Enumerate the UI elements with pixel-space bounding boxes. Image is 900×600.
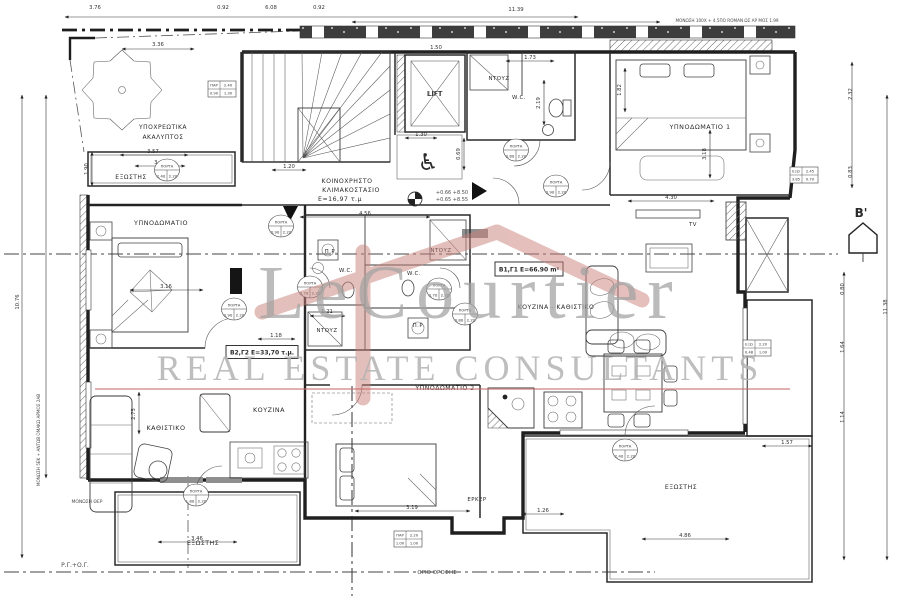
door-tag-word: ΠΟΡΤΑ: [619, 445, 632, 449]
stair-core-cross: [298, 108, 340, 162]
stair-fan: [302, 52, 390, 158]
kitchen-corner-hatch: [488, 408, 508, 428]
window-tag-cell: 2.45: [806, 170, 815, 174]
chair-3: [608, 414, 624, 427]
balcony-bottom-left-inner: [118, 495, 297, 562]
duct-shaft-cross: [746, 218, 788, 292]
door-tag-width: 0.80: [506, 154, 515, 159]
nightstand-1b: [750, 134, 770, 152]
room-label: ΕΡΚΕΡ: [467, 497, 487, 503]
door-tag-width: 1.80: [186, 499, 195, 504]
boundary-corner-bracket: [70, 38, 95, 60]
door-tag-word: ΠΟΡΤΑ: [228, 304, 241, 308]
dimension-label: 10.76: [15, 294, 21, 310]
blanket-cross: [130, 270, 172, 312]
door-tag-word: ΠΟΡΤΑ: [190, 490, 203, 494]
sofa-b2-cushions: [90, 425, 132, 483]
window-tag-cell: 2.20: [759, 343, 768, 347]
room-label: ΚΟΥΖΙΝΑ: [253, 406, 285, 414]
dimension-label: 3.57: [147, 149, 159, 155]
nightstand-1a: [750, 56, 770, 74]
window-tag-cell: 3.85: [792, 178, 801, 182]
street-wall-band: [300, 26, 795, 38]
dimension-label: 1.14: [840, 410, 846, 422]
room-label: ΕΞΩΣΤΗΣ: [665, 484, 697, 491]
dimension-label: 2.32: [848, 88, 854, 100]
balcony-bottom-right: [523, 436, 812, 582]
room-label: ΚΛΙΜΑΚΟΣΤΑΣΙΟ: [322, 187, 380, 194]
shower-diag: [470, 55, 508, 90]
door-tag-width: 0.90: [224, 313, 233, 318]
stair-steps: [252, 52, 285, 162]
tv-stand: [636, 210, 700, 218]
bed-2-pillow: [118, 243, 182, 257]
counter-b2: [230, 442, 308, 478]
dimension-label: 0.69: [456, 148, 462, 160]
sink-b2: [238, 448, 262, 468]
room-label: LIFT: [427, 90, 443, 98]
window-tag-cell: 1.00: [410, 542, 419, 546]
rug-1: [640, 156, 724, 180]
dimension-label: 1.50: [430, 45, 442, 51]
note-label: ΜΟΝΩΣΗ ΘΕΡ: [72, 499, 103, 505]
sink-b2-basin: [245, 453, 255, 463]
burner-b2-4: [292, 463, 300, 471]
burner-b2-1: [278, 449, 286, 457]
dimension-label: 1.82: [617, 84, 623, 96]
window-tag-cell: ΠΑΡ: [396, 534, 404, 538]
room-label: ΥΠΟΧΡΕΩΤΙΚΑ: [138, 124, 187, 131]
tree-icon: [82, 50, 162, 130]
note-label: +0.65 +8.55: [436, 197, 468, 203]
bed-2-fold: [112, 300, 148, 332]
door-tag-height: 2.20: [198, 499, 207, 504]
door-arc-1: [205, 318, 235, 348]
watermark-subtitle: REAL ESTATE CONSULTANTS: [157, 348, 764, 388]
room-label: ΥΠΝΟΔΩΜΑΤΙΟ 1: [668, 123, 730, 131]
room-label: ΑΚΑΛΥΠΤΟΣ: [142, 134, 183, 141]
floor-plan-canvas: LIFT ♿: [0, 0, 900, 600]
window-tag-cell: 0.90: [210, 92, 219, 96]
dimension-label: 2.75: [131, 408, 137, 420]
door-tag-height: 2.20: [518, 154, 527, 159]
dimension-label: 1.20: [283, 164, 295, 170]
column-hatched: [726, 202, 746, 240]
bed-2: [112, 238, 188, 332]
window-tag-cell: 2.40: [224, 84, 233, 88]
dimension-label: 3.19: [406, 505, 418, 511]
door-tag-height: 2.20: [283, 230, 292, 235]
dimension-label: 1.30: [415, 132, 427, 138]
staircase: [242, 52, 390, 162]
stair-outline: [242, 52, 390, 162]
dimension-label: 1.90: [84, 162, 90, 174]
dimension-label: 11.38: [883, 299, 889, 315]
door-tag-width: 0.90: [271, 230, 280, 235]
dimension-label: 1.64: [840, 340, 846, 352]
door-tag-height: 2.20: [627, 454, 636, 459]
door-tag-word: ΠΟΡΤΑ: [550, 181, 563, 185]
burner-b2-2: [292, 449, 300, 457]
dimension-label: 1.57: [781, 440, 793, 446]
insulated-wall-top: [610, 40, 772, 52]
toilet-icon-top: [549, 99, 563, 117]
section-marker-label: B': [855, 206, 868, 220]
door-tag-word: ΠΟΡΤΑ: [161, 165, 174, 169]
bed-1-pillow-b: [684, 64, 714, 77]
burner-b1-2: [566, 396, 576, 406]
window-tag-cell: ΕΞΩ: [792, 170, 800, 174]
kitchen-sink-b1: [512, 398, 524, 410]
door-tag-word: ΠΟΡΤΑ: [510, 145, 523, 149]
note-label: +0.66 +8.50: [436, 190, 468, 196]
door-tag-height: 2.20: [558, 190, 567, 195]
dimension-label: 3.76: [89, 5, 101, 11]
room-label: ΚΟΙΝΟΧΡΗΣΤΟ: [322, 178, 373, 185]
dimension-label: 4.30: [665, 195, 677, 201]
dimension-label: 1.26: [537, 508, 549, 514]
lift-shaft-wall: [397, 55, 405, 132]
lamp-2b: [96, 334, 106, 344]
bed-3-fold: [408, 474, 436, 506]
watermark: LeCourtier REAL ESTATE CONSULTANTS: [95, 232, 790, 398]
room-label: Ε=16,97 τ.μ: [318, 196, 362, 203]
nightstand-2b: [90, 330, 112, 348]
dimension-label: 6.08: [265, 5, 277, 11]
burner-b1-1: [548, 396, 558, 406]
dimension-label: 0.92: [217, 5, 229, 11]
nightstand-2a: [90, 222, 112, 240]
bed-1-fold: [616, 118, 648, 150]
column: [230, 268, 242, 294]
burner-b1-3: [548, 412, 558, 422]
dimension-label: 0.80: [840, 282, 846, 294]
window-tag-cell: 0.70: [806, 178, 815, 182]
door-tag-width: 2.40: [157, 174, 166, 179]
door-arc-7: [582, 162, 610, 190]
bed-1: [616, 60, 746, 150]
dimension-label: 4.56: [359, 211, 371, 217]
bedroom2-walls: [305, 385, 480, 518]
entry-arrow-b1: [472, 182, 487, 200]
room-label: ΚΑΘΙΣΤΙΚΟ: [146, 424, 185, 432]
room-label: ΥΠΝΟΔΩΜΑΤΙΟ: [133, 219, 188, 227]
sliding-door-south: [560, 430, 688, 435]
dimension-label: 0.92: [313, 5, 325, 11]
burner-b2-3: [278, 463, 286, 471]
room-label: ΕΞΩΣΤΗΣ: [115, 174, 146, 181]
stove-b2: [274, 446, 304, 474]
room-label: W.C.: [512, 95, 526, 101]
window-tag-cell: ΠΑΡ: [210, 84, 218, 88]
door-tag-word: ΠΟΡΤΑ: [275, 221, 288, 225]
washbasin-top: [543, 125, 554, 136]
note-label: Ρ.Γ.+Ο.Γ.: [61, 562, 89, 569]
kitchen-tap-b1: [503, 395, 508, 400]
window-tag-cell: 2.20: [410, 534, 419, 538]
plate-3: [612, 390, 626, 400]
door-tag-width: 2.40: [615, 454, 624, 459]
dimension-label: 11.39: [508, 7, 523, 13]
lamp-1b: [756, 139, 764, 147]
door-tag-height: 2.20: [236, 313, 245, 318]
boundary-line-top: [95, 31, 298, 38]
window-tag-cell: ΕΞΩ: [745, 343, 753, 347]
bed-1-pillow-a: [640, 64, 670, 77]
room-label: TV: [688, 222, 697, 228]
wheelchair-icon: ♿: [418, 150, 439, 176]
door-tag-height: 2.20: [169, 174, 178, 179]
room-label: ΝΤΟΥΖ: [488, 76, 509, 82]
burner-b1-4: [566, 412, 576, 422]
lamp-1a: [756, 61, 764, 69]
dimension-label: 1.73: [524, 55, 536, 61]
fridge-diag: [200, 394, 230, 432]
boundary-line-slant: [70, 60, 84, 152]
door-tag-width: 0.90: [546, 190, 555, 195]
window-left-1: [86, 250, 91, 310]
dimension-label: 4.86: [679, 533, 691, 539]
dimension-label: 3.46: [191, 536, 203, 542]
note-label: ΟΡΙΟ ΟΡΟΦΗΣ: [417, 570, 457, 576]
lamp-2a: [96, 226, 106, 236]
plate-4: [636, 390, 650, 400]
chair-6: [664, 390, 677, 406]
dimension-label: 0.83: [848, 166, 854, 178]
dimension-label: 3.36: [152, 42, 164, 48]
section-marker-arrow-icon: [849, 223, 877, 253]
chair-4: [634, 414, 650, 427]
balcony-bottom-left: [115, 492, 300, 565]
window-tag-cell: 1.30: [224, 92, 233, 96]
tree-trunk: [119, 87, 126, 94]
balcony-bottom-right-inner: [526, 439, 809, 579]
section-marker-b: B': [849, 206, 877, 262]
dimension-label: 3.18: [702, 147, 708, 159]
floor-plan-sheet: LIFT ♿: [0, 0, 900, 600]
window-tag-cell: 1.00: [396, 542, 405, 546]
door-arc-6: [493, 178, 519, 204]
note-label: ΜΟΝΩΣΗ 100Χ + 4.5ΠΟ ROMAN ΩΣ ΑΡ ΜΟΣ 1.99: [675, 18, 778, 23]
coffee-table-b2: [149, 461, 167, 479]
toilet-tank-top: [563, 100, 571, 116]
watermark-brand: LeCourtier: [258, 251, 681, 335]
dimension-label: 2.19: [536, 97, 542, 109]
note-label: ΜΟΝΩΣΗ 5ΕΚ + ΑΝΤΩΒ ΟΜΑΚΩ ΑΡΜΟΣ 2ΑΒ: [36, 394, 41, 486]
dimension-label: 3.16: [160, 284, 172, 290]
